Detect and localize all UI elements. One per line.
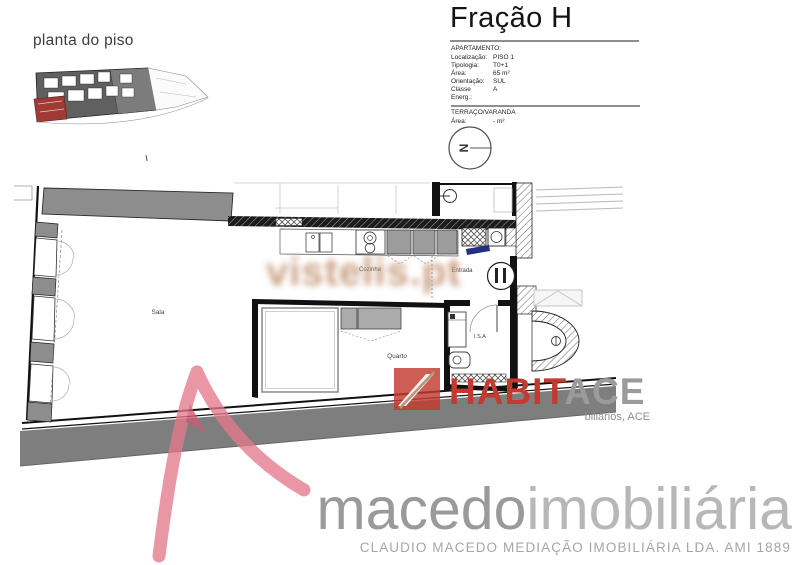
title-divider bbox=[450, 40, 639, 42]
floor-plan: Sala Cozinha Entrada Quarto I.S.A bbox=[14, 182, 623, 466]
brand-primary: macedo bbox=[317, 476, 527, 542]
room-label-quarto: Quarto bbox=[387, 353, 407, 360]
terrace-band bbox=[42, 188, 233, 221]
habitace-subtitle: biliários, ACE bbox=[450, 411, 650, 423]
apartment-heading: APARTAMENTO: bbox=[451, 45, 641, 53]
info-row: Tipologia: T0+1 bbox=[451, 62, 641, 70]
terrace-heading: TERRAÇO/VARANDA bbox=[451, 109, 641, 117]
agency-tagline: CLAUDIO MACEDO MEDIAÇÃO IMOBILIÁRIA LDA.… bbox=[0, 540, 791, 555]
info-label: Área: bbox=[451, 118, 493, 126]
info-row: Classe Energ.: A bbox=[451, 86, 641, 102]
watermark: vistelis.pt bbox=[266, 250, 526, 295]
info-value: 65 m² bbox=[493, 70, 510, 78]
left-wall bbox=[27, 186, 75, 422]
north-indicator: N bbox=[449, 127, 491, 169]
site-plan-thumbnail bbox=[34, 68, 208, 124]
info-label: Tipologia: bbox=[451, 62, 493, 70]
info-value: - m² bbox=[493, 118, 505, 126]
info-row: Área: - m² bbox=[451, 118, 641, 126]
habitace-logo-icon bbox=[394, 366, 442, 412]
info-row: Área: 65 m² bbox=[451, 70, 641, 78]
north-letter: N bbox=[457, 144, 471, 153]
site-plan-label: planta do piso bbox=[33, 32, 134, 50]
room-label-sala: Sala bbox=[151, 309, 164, 316]
roof-outline bbox=[534, 290, 582, 306]
page-title: Fração H bbox=[450, 2, 572, 35]
habitace-wordmark: HABITACE bbox=[449, 373, 645, 410]
habitace-text-gray: ACE bbox=[564, 371, 645, 412]
tick-mark bbox=[146, 155, 147, 161]
info-label: Área: bbox=[451, 70, 493, 78]
info-row: Localização: PISO 1 bbox=[451, 54, 641, 62]
info-label: Localização: bbox=[451, 54, 493, 62]
habitace-logo: HABITACE bbox=[394, 366, 645, 412]
habitace-text-red: HABIT bbox=[449, 371, 564, 412]
info-value: A bbox=[493, 86, 497, 102]
bed bbox=[262, 308, 338, 392]
info-value: SUL bbox=[493, 78, 506, 86]
info-label: Classe Energ.: bbox=[451, 86, 493, 102]
info-label: Orientação: bbox=[451, 78, 493, 86]
info-value: PISO 1 bbox=[493, 54, 514, 62]
page: N bbox=[0, 0, 800, 565]
info-value: T0+1 bbox=[493, 62, 508, 70]
info-divider bbox=[451, 105, 640, 107]
room-label-isa: I.S.A bbox=[474, 334, 486, 340]
wardrobe bbox=[341, 308, 357, 329]
info-row: Orientação: SUL bbox=[451, 78, 641, 86]
adjacent-room bbox=[432, 182, 517, 216]
brand-secondary: imobiliária bbox=[526, 476, 792, 542]
apartment-info-panel: APARTAMENTO: Localização: PISO 1 Tipolog… bbox=[451, 45, 641, 126]
macedo-wordmark: macedoimobiliária bbox=[0, 479, 792, 539]
